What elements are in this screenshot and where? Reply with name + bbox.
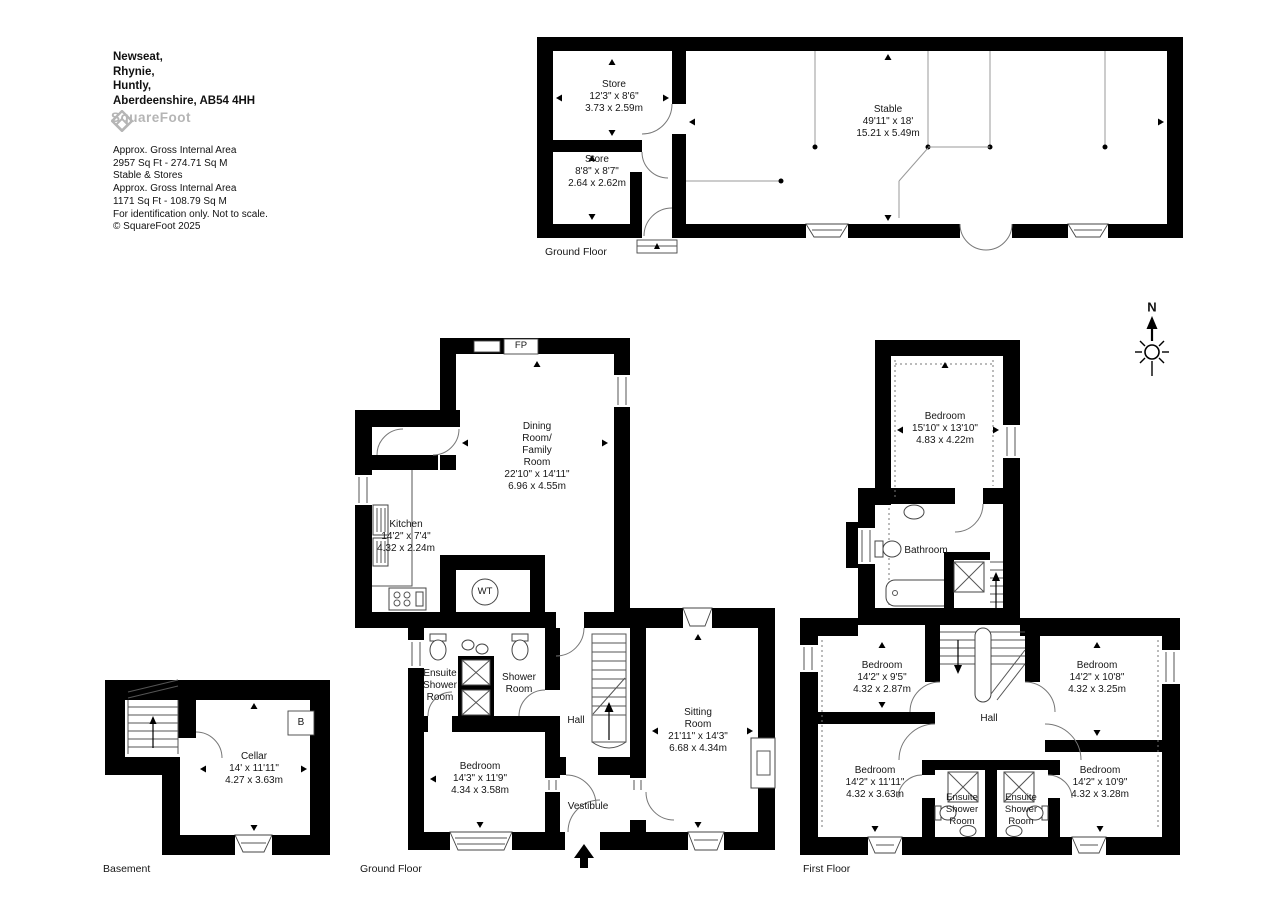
floor-label-stable-ground: Ground Floor	[545, 246, 607, 258]
bathroom-fixtures	[875, 505, 1003, 625]
room-label-bedroom-5: Bedroom 14'2" x 10'9" 4.32 x 3.28m	[1071, 765, 1129, 801]
room-label-vestibule: Vestibule	[568, 801, 609, 813]
water-tank-label: WT	[478, 586, 493, 598]
stable-double-door	[960, 224, 986, 250]
room-label-store-1: Store 12'3" x 8'6" 3.73 x 2.59m	[585, 79, 643, 115]
room-label-bedroom-3: Bedroom 14'2" x 10'8" 4.32 x 3.25m	[1068, 660, 1126, 696]
boiler-label: B	[298, 717, 305, 729]
floorplan-page: Newseat, Rhynie, Huntly, Aberdeenshire, …	[0, 0, 1280, 904]
stable-stores-walls	[537, 37, 1183, 253]
bathtub-icon	[886, 580, 952, 606]
room-label-bedroom-1: Bedroom 15'10" x 13'10" 4.83 x 4.22m	[912, 411, 978, 447]
fireplace-label: FP	[515, 340, 527, 352]
compass-north-label: N	[1147, 300, 1156, 315]
basement-walls	[105, 680, 330, 855]
area-details: Approx. Gross Internal Area 2957 Sq Ft -…	[113, 145, 268, 234]
north-arrow-icon	[1147, 316, 1158, 329]
room-label-dining: Dining Room/ Family Room 22'10" x 14'11"…	[504, 421, 569, 493]
room-label-bedroom-4: Bedroom 14'2" x 11'11" 4.32 x 3.63m	[846, 765, 905, 801]
room-label-hall-ground: Hall	[567, 715, 584, 727]
room-label-shower-room: Shower Room	[502, 672, 536, 696]
room-label-hall-first: Hall	[980, 713, 997, 725]
room-label-ensuite-1: Ensuite Shower Room	[946, 792, 978, 828]
room-label-sitting: Sitting Room 21'11" x 14'3" 6.68 x 4.34m	[668, 707, 728, 755]
room-label-ensuite-ground: Ensuite Shower Room	[423, 668, 457, 704]
floor-label-first: First Floor	[803, 863, 850, 875]
fireplace-recess	[751, 738, 775, 788]
squarefoot-diamond-icon	[111, 110, 133, 132]
store-door-arc	[642, 104, 672, 134]
squarefoot-logo: SquareFoot	[111, 110, 191, 125]
bay-window	[450, 832, 512, 850]
entrance-arrow-icon	[574, 844, 594, 858]
room-label-stable: Stable 49'11" x 18' 15.21 x 5.49m	[856, 104, 919, 140]
room-label-bedroom-ground: Bedroom 14'3" x 11'9" 4.34 x 3.58m	[451, 761, 509, 797]
room-label-bedroom-2: Bedroom 14'2" x 9'5" 4.32 x 2.87m	[853, 660, 911, 696]
room-label-cellar: Cellar 14' x 11'11" 4.27 x 3.63m	[225, 751, 283, 787]
north-compass	[1135, 316, 1169, 376]
ground-floor-stairs	[592, 634, 626, 748]
property-address: Newseat, Rhynie, Huntly, Aberdeenshire, …	[113, 50, 255, 108]
shower-stalls	[458, 640, 494, 718]
first-floor-stairs	[940, 628, 1025, 702]
room-label-bathroom: Bathroom	[904, 545, 947, 557]
floor-label-ground: Ground Floor	[360, 863, 422, 875]
room-label-store-2: Store 8'8" x 8'7" 2.64 x 2.62m	[568, 154, 626, 190]
room-label-kitchen: Kitchen 14'2" x 7'4" 4.32 x 2.24m	[377, 519, 435, 555]
floor-label-basement: Basement	[103, 863, 150, 875]
sitting-window	[683, 608, 712, 626]
ground-floor-walls	[355, 338, 775, 868]
room-label-ensuite-2: Ensuite Shower Room	[1005, 792, 1037, 828]
